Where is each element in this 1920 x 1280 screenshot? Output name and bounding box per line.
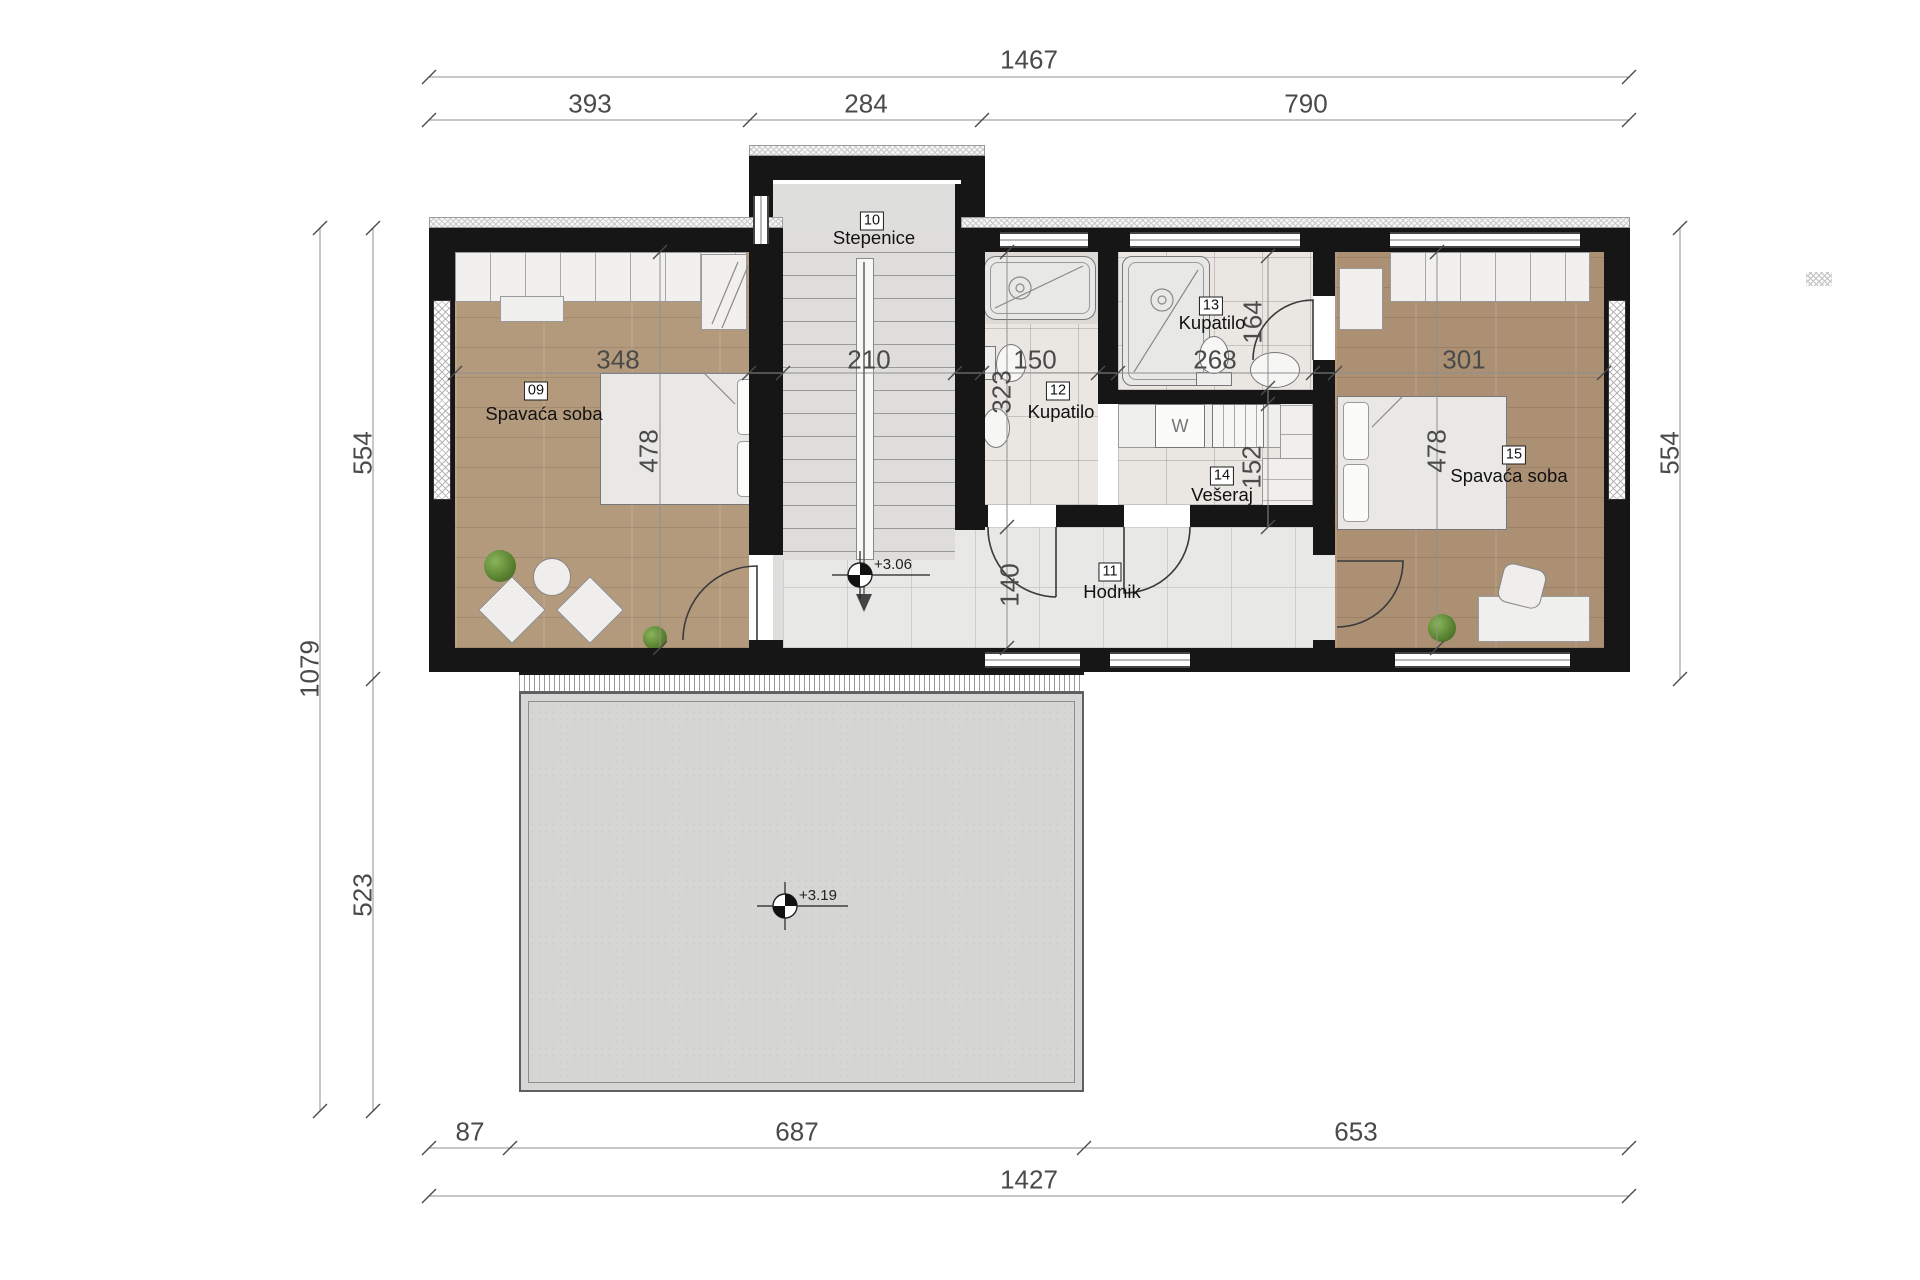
- room-15-number: 15: [1502, 446, 1526, 465]
- dim-right-upper: 554: [1655, 431, 1686, 474]
- room-11-name: Hodnik: [1083, 581, 1141, 603]
- dim-left-upper: 554: [348, 431, 379, 474]
- dim-stairs-width: 210: [847, 345, 890, 376]
- room-15-name: Spavaća soba: [1450, 465, 1567, 487]
- room-10-name: Stepenice: [833, 227, 915, 249]
- dim-laundry-height: 152: [1237, 445, 1268, 488]
- shower-13-drain-dot: [1158, 296, 1166, 304]
- dim-left-lower: 523: [348, 873, 379, 916]
- dim-bath12-width: 150: [1013, 345, 1056, 376]
- dim-top-seg-1: 393: [568, 89, 611, 120]
- dim-bed15-width: 301: [1442, 345, 1485, 376]
- shower-13-drain-icon: [1151, 289, 1173, 311]
- level-upper-label: +3.06: [874, 556, 912, 573]
- dim-hall-height: 140: [995, 563, 1026, 606]
- room-14-name: Vešeraj: [1191, 484, 1253, 506]
- dim-bath12-height: 323: [987, 370, 1018, 413]
- room-12-number: 12: [1046, 382, 1070, 401]
- room-09-number: 09: [524, 382, 548, 401]
- dim-bed09-height: 478: [634, 429, 665, 472]
- room-11-number: 11: [1098, 563, 1121, 582]
- floor-plan-canvas: W: [0, 0, 1920, 1280]
- dim-bottom-seg-1: 87: [456, 1117, 485, 1148]
- dimension-ticks: [313, 70, 1687, 1203]
- room-14-number: 14: [1210, 467, 1234, 486]
- dim-top-seg-3: 790: [1284, 89, 1327, 120]
- dim-top-seg-2: 284: [844, 89, 887, 120]
- room-09-name: Spavaća soba: [485, 403, 602, 425]
- dim-bottom-total: 1427: [1000, 1165, 1058, 1196]
- dim-bath13-width: 268: [1193, 345, 1236, 376]
- drawing-overlay: [0, 0, 1920, 1280]
- dim-top-total: 1467: [1000, 45, 1058, 76]
- level-terrace-label: +3.19: [799, 887, 837, 904]
- tub-12-drain-dot: [1016, 284, 1024, 292]
- dim-bed09-width: 348: [596, 345, 639, 376]
- stair-arrow-head: [856, 594, 872, 612]
- dim-bed15-height: 478: [1422, 429, 1453, 472]
- dim-bottom-seg-3: 653: [1334, 1117, 1377, 1148]
- room-13-name: Kupatilo: [1179, 312, 1246, 334]
- room-12-name: Kupatilo: [1028, 401, 1095, 423]
- dim-bottom-seg-2: 687: [775, 1117, 818, 1148]
- dim-left-total: 1079: [295, 640, 326, 698]
- dimension-lines: [320, 77, 1680, 1196]
